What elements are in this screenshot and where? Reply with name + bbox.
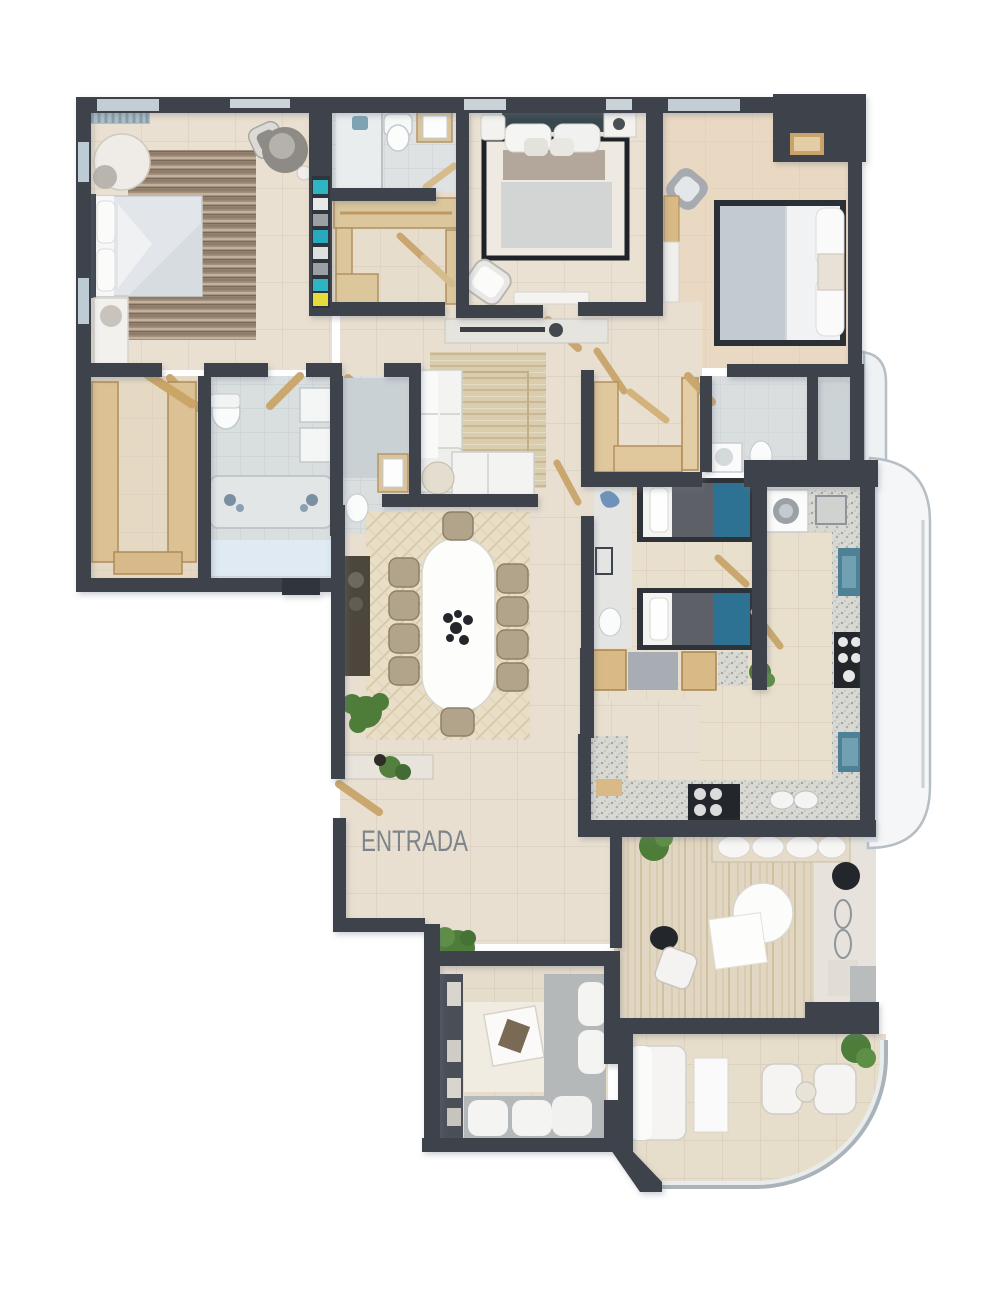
svg-text:ENTRADA: ENTRADA (361, 825, 468, 858)
